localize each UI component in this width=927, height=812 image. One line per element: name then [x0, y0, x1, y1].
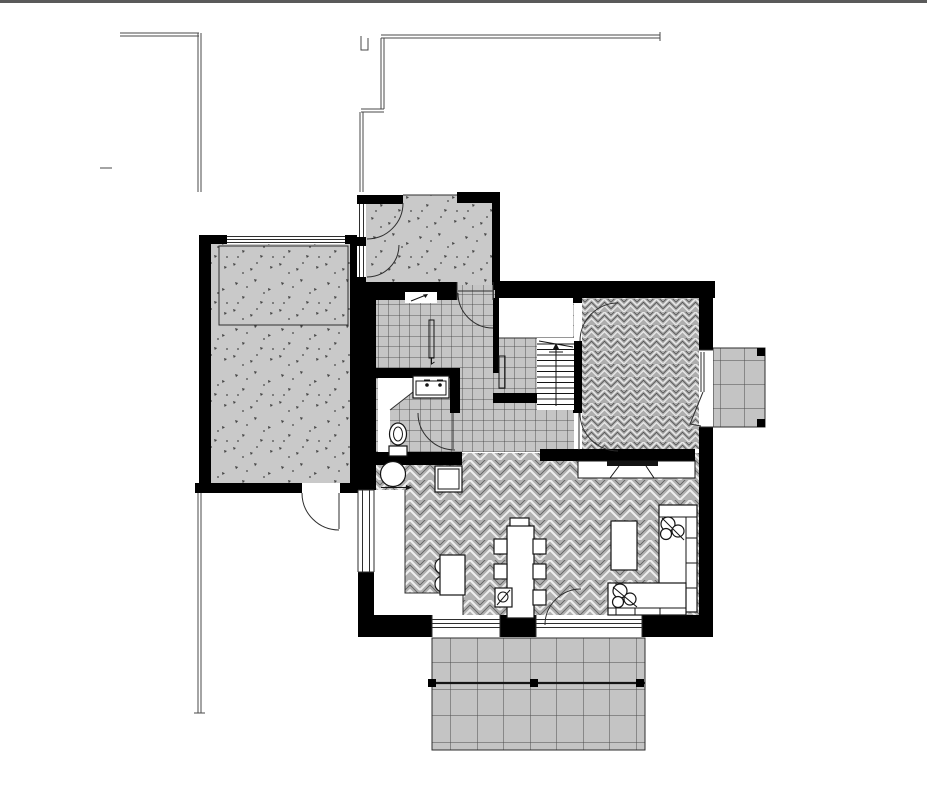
chair [533, 590, 546, 605]
top-border-line [0, 0, 927, 3]
chair [494, 539, 507, 554]
coffee-table [611, 521, 637, 570]
kitchen-terrace-window [432, 615, 500, 637]
wall [358, 615, 432, 637]
wall [199, 235, 211, 493]
pergola-post [530, 679, 538, 687]
pergola-post [636, 679, 644, 687]
porch-side-door-lower [357, 246, 366, 277]
kitchen-window [358, 490, 374, 572]
left-fence-lower-line [194, 493, 205, 713]
terrace-paving [432, 638, 645, 750]
wall [450, 378, 460, 413]
wall [195, 483, 302, 493]
wall [357, 195, 403, 204]
entry-niche [405, 292, 437, 303]
chair [494, 564, 507, 579]
garage-floor [211, 244, 350, 483]
kitchen-island [435, 555, 465, 595]
garage-door [227, 235, 345, 244]
balcony [713, 348, 765, 427]
right-stepped-boundary [360, 32, 660, 192]
vanity-sink [413, 376, 449, 398]
floor-plan-canvas [0, 0, 927, 812]
toilet [389, 423, 407, 456]
balcony-paving [713, 348, 765, 427]
porch-side-door-upper [357, 204, 366, 237]
wall [495, 281, 715, 298]
wall [493, 393, 537, 403]
balcony-post [757, 348, 765, 356]
wall [573, 298, 582, 303]
terrace [428, 638, 645, 750]
high-chair [495, 588, 512, 607]
study-herringbone-floor [582, 298, 699, 449]
wall [573, 341, 582, 413]
chair [533, 564, 546, 579]
wardrobe-area [499, 298, 573, 338]
floor-plan-drawing [0, 0, 927, 812]
chair [533, 539, 546, 554]
wall [358, 452, 462, 465]
garage-side-door-swing [302, 493, 339, 530]
balcony-post [757, 419, 765, 427]
wall [699, 427, 713, 637]
wall [493, 298, 499, 373]
floor-hatch [435, 466, 462, 492]
living-slider-window [536, 615, 642, 637]
pergola-post [428, 679, 436, 687]
left-fence-line [120, 33, 201, 192]
wall [492, 196, 500, 290]
